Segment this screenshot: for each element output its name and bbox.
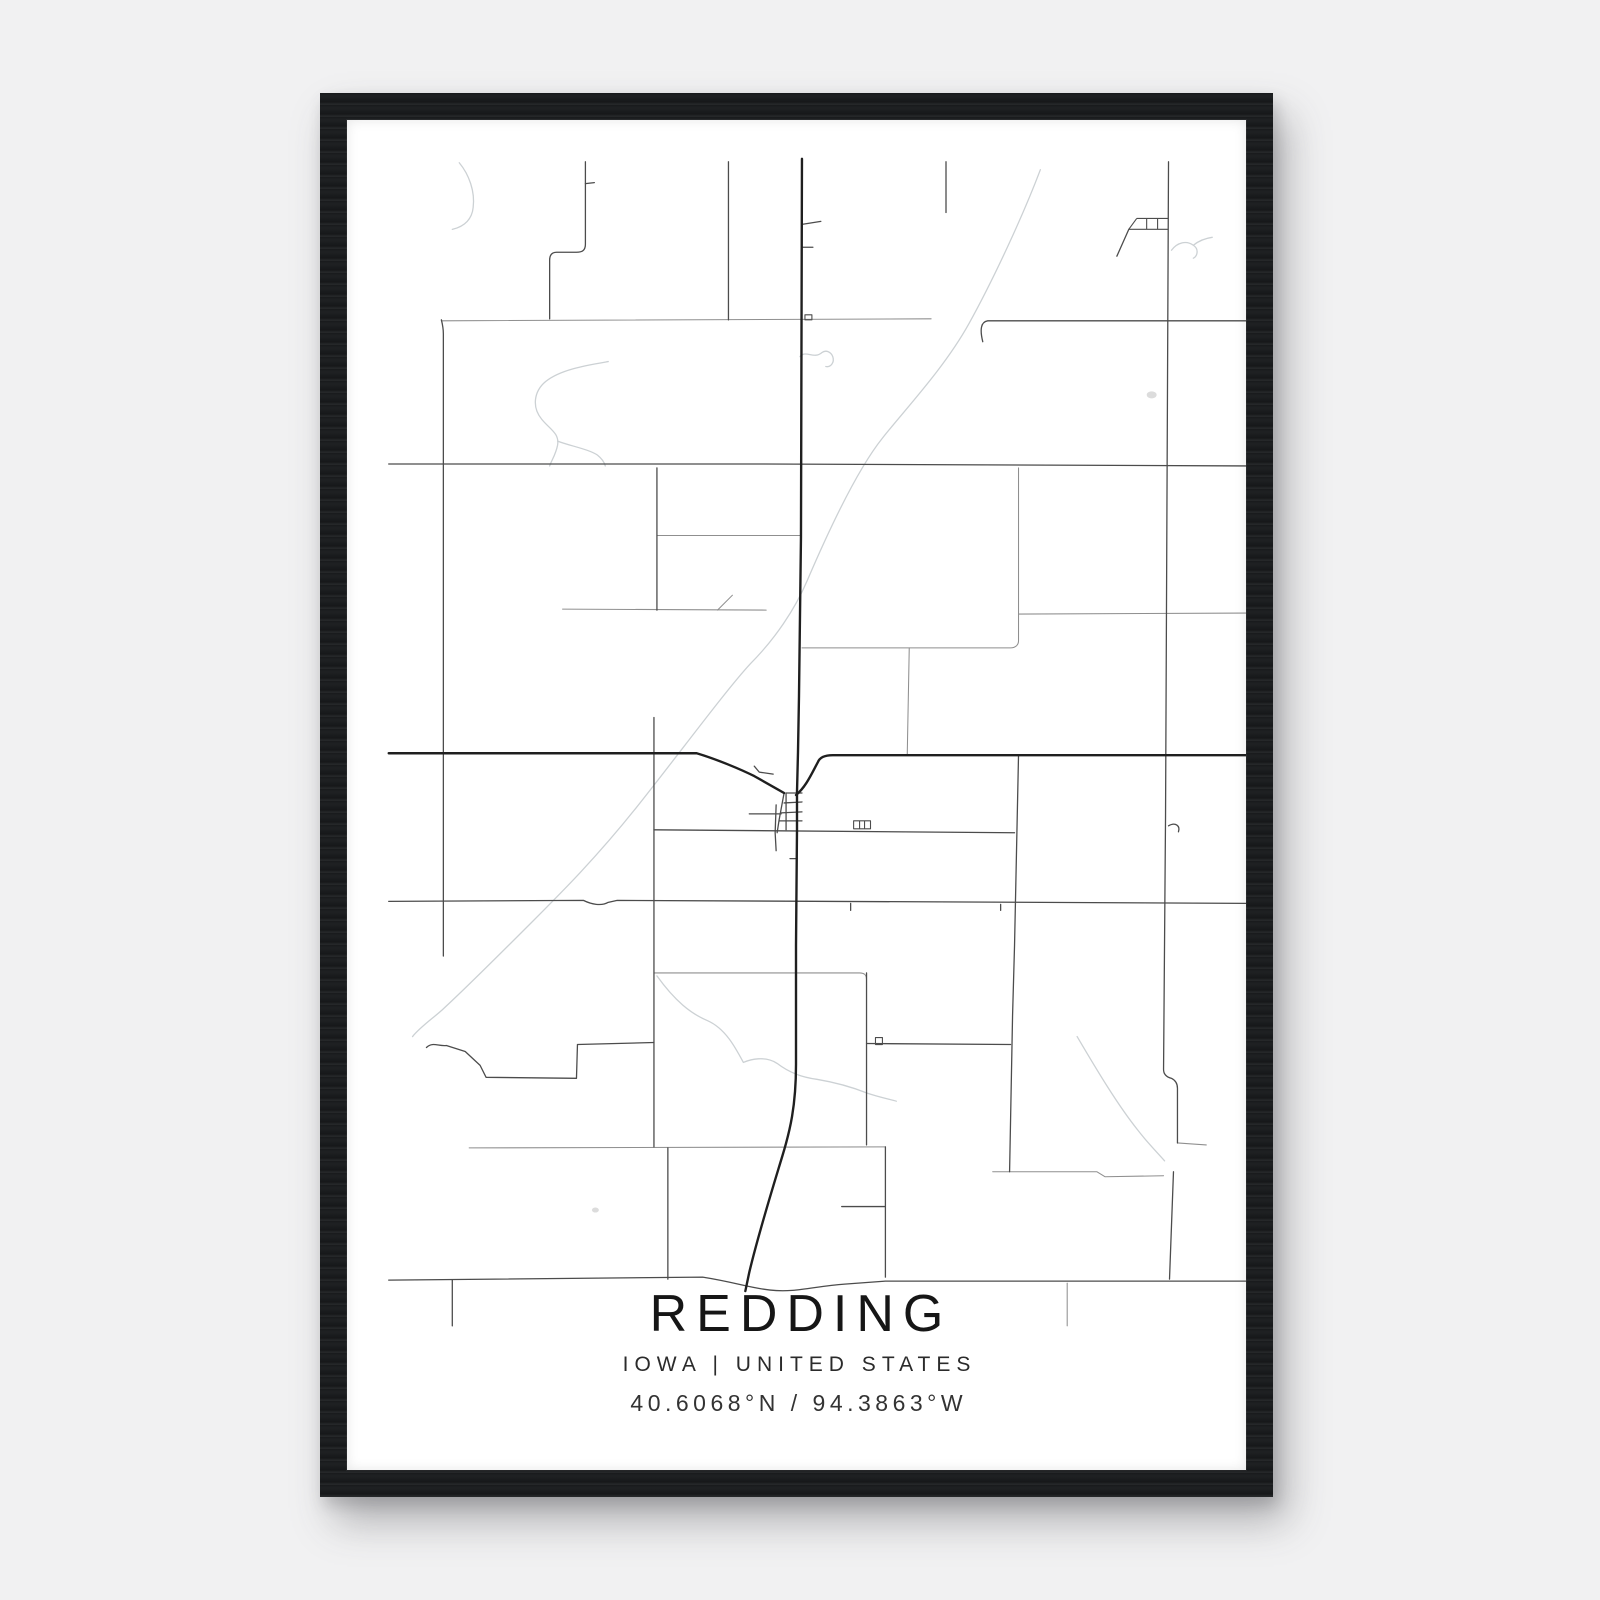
layer-roads-major — [389, 159, 1246, 1291]
city-title: REDDING — [347, 1288, 1246, 1340]
layer-ponds — [592, 391, 1157, 1212]
layer-structures — [805, 218, 1169, 1044]
layer-streams — [413, 163, 1213, 1161]
map-canvas: REDDING IOWA | UNITED STATES 40.6068°N /… — [347, 120, 1246, 1470]
title-block: REDDING IOWA | UNITED STATES 40.6068°N /… — [347, 1288, 1246, 1417]
page-background: { "poster": { "title": "REDDING", "subti… — [0, 0, 1600, 1600]
poster-frame: REDDING IOWA | UNITED STATES 40.6068°N /… — [320, 93, 1273, 1497]
layer-roads-minor — [389, 162, 1246, 1326]
street-map-svg — [347, 120, 1246, 1470]
layer-roads-light — [441, 319, 1246, 1326]
region-subtitle: IOWA | UNITED STATES — [347, 1353, 1246, 1377]
coordinates-label: 40.6068°N / 94.3863°W — [347, 1390, 1246, 1417]
